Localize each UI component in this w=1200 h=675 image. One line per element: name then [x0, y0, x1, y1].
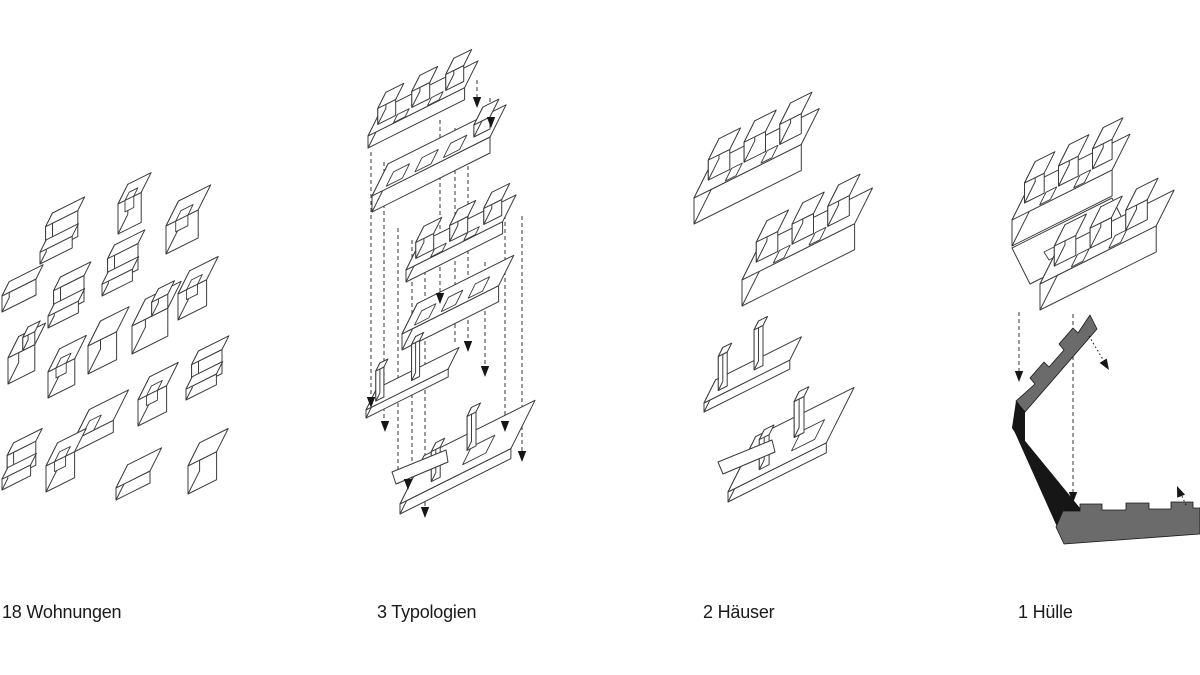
architecture-diagram-canvas [0, 0, 1200, 675]
diagram-3-typologien [366, 49, 535, 518]
panel-label-18-wohnungen: 18 Wohnungen [2, 601, 121, 623]
diagram-1-huelle [1012, 118, 1200, 544]
diagram-2-haeuser [694, 92, 873, 502]
panel-label-2-haeuser: 2 Häuser [703, 601, 774, 623]
panel-label-3-typologien: 3 Typologien [377, 601, 476, 623]
diagram-18-wohnungen [2, 173, 229, 500]
panel-label-1-huelle: 1 Hülle [1018, 601, 1073, 623]
